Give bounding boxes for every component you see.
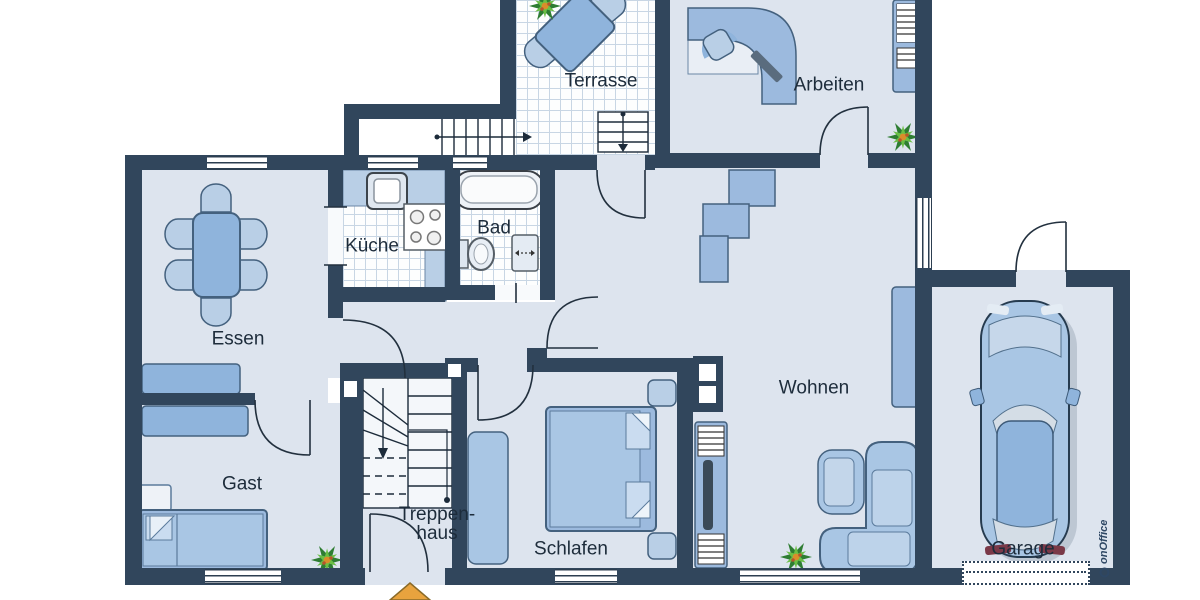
door-swings (255, 107, 1066, 572)
room-label-treppenhaus: Treppen- haus (399, 505, 475, 543)
room-label-kueche: Küche (345, 237, 399, 256)
floor-plan: Terrasse Arbeiten Küche Bad Essen Wohnen… (0, 0, 1200, 600)
onoffice-logo-icon (1099, 567, 1110, 578)
room-label-treppenhaus-line1: Treppen- (399, 504, 475, 525)
room-label-essen: Essen (212, 330, 265, 349)
room-label-gast: Gast (222, 475, 262, 494)
room-label-treppenhaus-line2: haus (416, 523, 457, 544)
room-label-schlafen: Schlafen (534, 540, 608, 559)
room-label-terrasse: Terrasse (565, 72, 638, 91)
room-label-arbeiten: Arbeiten (794, 76, 865, 95)
watermark-text: onOffice (1098, 520, 1110, 564)
room-label-bad: Bad (477, 219, 511, 238)
room-label-garage: Garage (991, 540, 1054, 559)
onoffice-watermark: onOffice (1098, 468, 1110, 578)
entrance-arrow-icon (390, 583, 430, 600)
room-label-wohnen: Wohnen (779, 379, 849, 398)
